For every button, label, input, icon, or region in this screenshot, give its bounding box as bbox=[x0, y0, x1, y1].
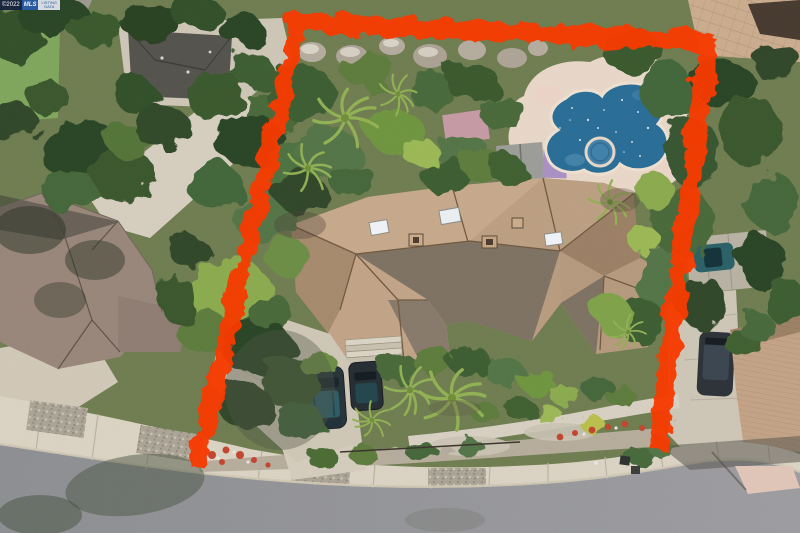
watermark-copyright: ©2022 bbox=[0, 0, 22, 10]
aerial-photo bbox=[0, 0, 800, 533]
watermark-text-block: LISTING DATA bbox=[38, 0, 60, 10]
aerial-photo-stage: ©2022 MLS LISTING DATA bbox=[0, 0, 800, 533]
mls-watermark: ©2022 MLS LISTING DATA bbox=[0, 0, 60, 10]
photo-grain bbox=[0, 0, 800, 533]
watermark-mls-logo: MLS bbox=[22, 0, 39, 10]
watermark-line-2: DATA bbox=[44, 5, 54, 9]
